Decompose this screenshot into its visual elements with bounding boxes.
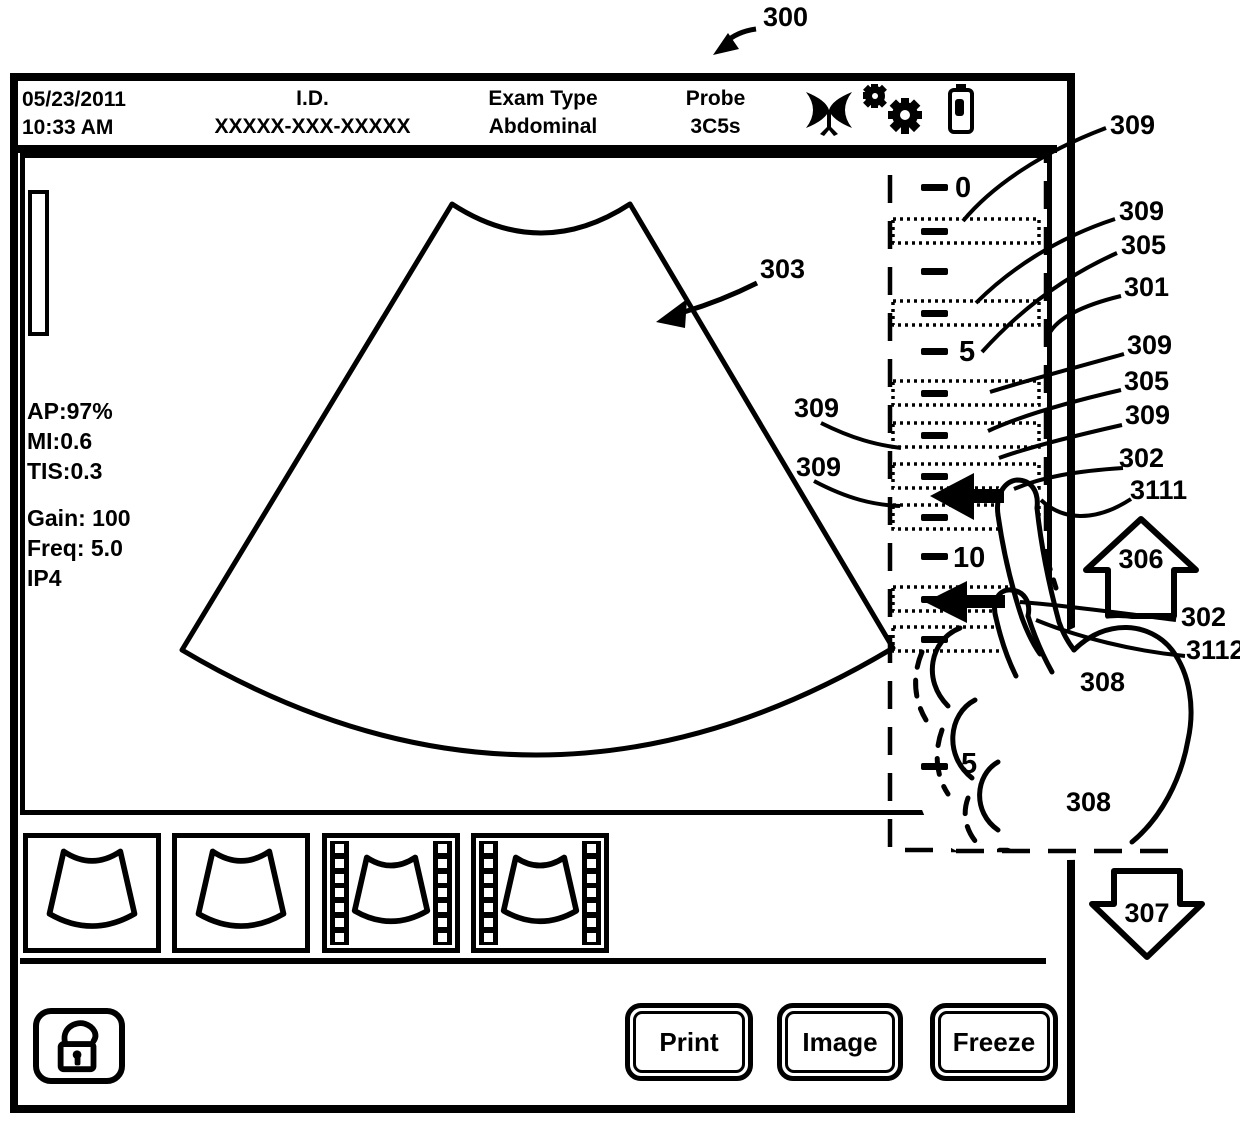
image-button-label: Image [802, 1027, 877, 1058]
battery-icon [950, 84, 972, 132]
refnum-302: 302 [1119, 443, 1164, 474]
mi-value: MI:0.6 [27, 426, 131, 456]
film-strip [582, 841, 601, 945]
refnum-308: 308 [1080, 667, 1125, 698]
antenna-icon [806, 92, 852, 136]
header-icons [800, 80, 980, 143]
thumbnail-still-2[interactable] [172, 833, 310, 953]
refnum-301: 301 [1124, 272, 1169, 303]
thumbnail-still-1[interactable] [23, 833, 161, 953]
thumbnail-cine-2[interactable] [471, 833, 609, 953]
refnum-302: 302 [1181, 602, 1226, 633]
film-strip [433, 841, 452, 945]
film-strip [330, 841, 349, 945]
refnum-306: 306 [1106, 544, 1176, 575]
patent-figure: 05/23/2011 10:33 AM I.D. XXXXX-XXX-XXXXX… [0, 0, 1240, 1123]
lock-button[interactable] [33, 1008, 125, 1084]
refnum-309: 309 [1127, 330, 1172, 361]
print-button-label: Print [659, 1027, 718, 1058]
ap-value: AP:97% [27, 396, 131, 426]
refnum-309: 309 [1125, 400, 1170, 431]
refnum-309: 309 [794, 393, 839, 424]
grayscale-bar [28, 190, 49, 336]
refnum-308: 308 [1066, 787, 1111, 818]
print-button[interactable]: Print [625, 1003, 753, 1081]
imaging-parameters: AP:97% MI:0.6 TIS:0.3 Gain: 100 Freq: 5.… [27, 396, 131, 593]
image-button[interactable]: Image [777, 1003, 903, 1081]
scale-label-15: 5 [961, 748, 977, 781]
sector-thumbnail-icon [191, 842, 291, 944]
refnum-303: 303 [760, 254, 805, 285]
tis-value: TIS:0.3 [27, 456, 131, 486]
gears-icon[interactable] [863, 84, 922, 134]
scale-label-0: 0 [955, 172, 971, 205]
refnum-3111: 3111 [1130, 475, 1187, 506]
gain-value: Gain: 100 [27, 503, 131, 533]
thumbnail-separator-line [20, 958, 1046, 964]
figure-300-arrow [713, 29, 756, 55]
freq-value: Freq: 5.0 [27, 533, 131, 563]
image-display-area [20, 153, 1052, 815]
open-lock-icon [50, 1018, 108, 1074]
refnum-300: 300 [763, 2, 808, 33]
refnum-309: 309 [1119, 196, 1164, 227]
sector-thumbnail-icon [349, 843, 433, 943]
film-strip [479, 841, 498, 945]
scale-label-5: 5 [959, 336, 975, 369]
refnum-309: 309 [796, 452, 841, 483]
refnum-305: 305 [1124, 366, 1169, 397]
freeze-button[interactable]: Freeze [930, 1003, 1058, 1081]
refnum-3112: 3112 [1186, 635, 1240, 666]
sector-thumbnail-icon [42, 842, 142, 944]
thumbnail-cine-1[interactable] [322, 833, 460, 953]
sector-thumbnail-icon [498, 843, 582, 943]
refnum-309: 309 [1110, 110, 1155, 141]
ip-value: IP4 [27, 563, 131, 593]
scale-label-10: 10 [953, 542, 985, 575]
freeze-button-label: Freeze [953, 1027, 1035, 1058]
refnum-305: 305 [1121, 230, 1166, 261]
refnum-307: 307 [1112, 898, 1182, 929]
